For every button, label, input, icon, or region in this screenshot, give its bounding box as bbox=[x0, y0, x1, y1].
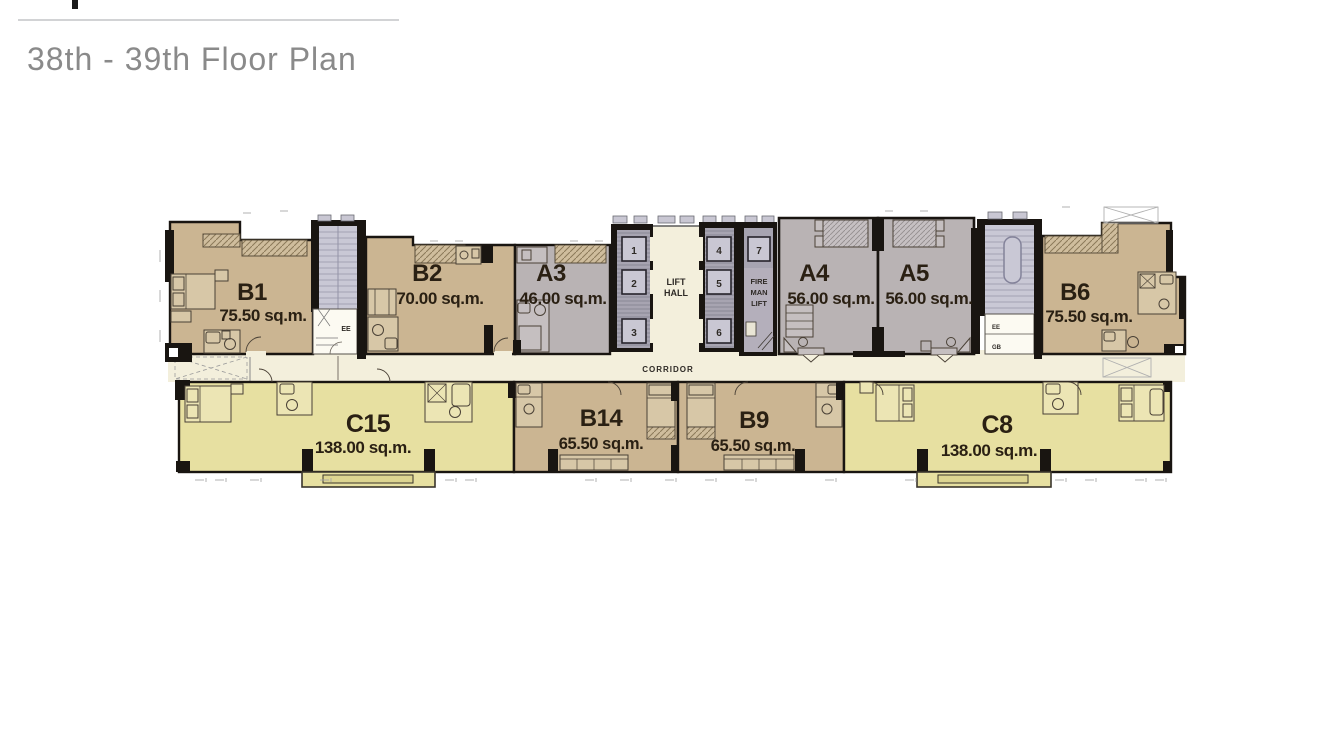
svg-text:B9: B9 bbox=[739, 407, 769, 434]
svg-text:5: 5 bbox=[716, 279, 722, 290]
svg-text:MAN: MAN bbox=[750, 288, 767, 297]
svg-text:75.50 sq.m.: 75.50 sq.m. bbox=[1045, 307, 1132, 326]
svg-text:38th - 39th Floor Plan: 38th - 39th Floor Plan bbox=[27, 41, 357, 77]
svg-text:GB: GB bbox=[992, 345, 1002, 351]
svg-text:4: 4 bbox=[716, 246, 722, 257]
svg-text:2: 2 bbox=[631, 279, 637, 290]
svg-text:B1: B1 bbox=[237, 279, 267, 306]
svg-text:6: 6 bbox=[716, 328, 722, 339]
svg-text:A5: A5 bbox=[899, 260, 929, 287]
svg-text:EE: EE bbox=[992, 325, 1000, 331]
svg-text:LIFT: LIFT bbox=[751, 299, 767, 308]
svg-text:A3: A3 bbox=[536, 260, 566, 287]
svg-text:46.00 sq.m.: 46.00 sq.m. bbox=[519, 289, 606, 308]
svg-text:FIRE: FIRE bbox=[750, 277, 767, 286]
svg-text:EE: EE bbox=[341, 326, 351, 333]
svg-text:A4: A4 bbox=[799, 260, 830, 287]
svg-text:B6: B6 bbox=[1060, 279, 1090, 306]
svg-text:B2: B2 bbox=[412, 260, 442, 287]
svg-text:CORRIDOR: CORRIDOR bbox=[642, 365, 694, 374]
svg-text:C15: C15 bbox=[346, 410, 391, 438]
svg-text:C8: C8 bbox=[982, 411, 1014, 439]
svg-text:LIFT: LIFT bbox=[667, 277, 686, 287]
svg-text:65.50 sq.m.: 65.50 sq.m. bbox=[559, 435, 644, 453]
svg-text:7: 7 bbox=[756, 246, 762, 257]
svg-text:138.00 sq.m.: 138.00 sq.m. bbox=[315, 438, 411, 457]
svg-text:1: 1 bbox=[631, 246, 637, 257]
svg-text:B14: B14 bbox=[580, 405, 624, 432]
svg-text:3: 3 bbox=[631, 328, 637, 339]
svg-text:75.50 sq.m.: 75.50 sq.m. bbox=[219, 306, 306, 325]
svg-text:70.00 sq.m.: 70.00 sq.m. bbox=[396, 289, 483, 308]
svg-text:65.50 sq.m.: 65.50 sq.m. bbox=[711, 437, 796, 455]
svg-text:HALL: HALL bbox=[664, 288, 688, 298]
svg-text:56.00 sq.m.: 56.00 sq.m. bbox=[787, 289, 874, 308]
svg-text:56.00 sq.m.: 56.00 sq.m. bbox=[885, 289, 972, 308]
svg-text:138.00 sq.m.: 138.00 sq.m. bbox=[941, 441, 1037, 460]
